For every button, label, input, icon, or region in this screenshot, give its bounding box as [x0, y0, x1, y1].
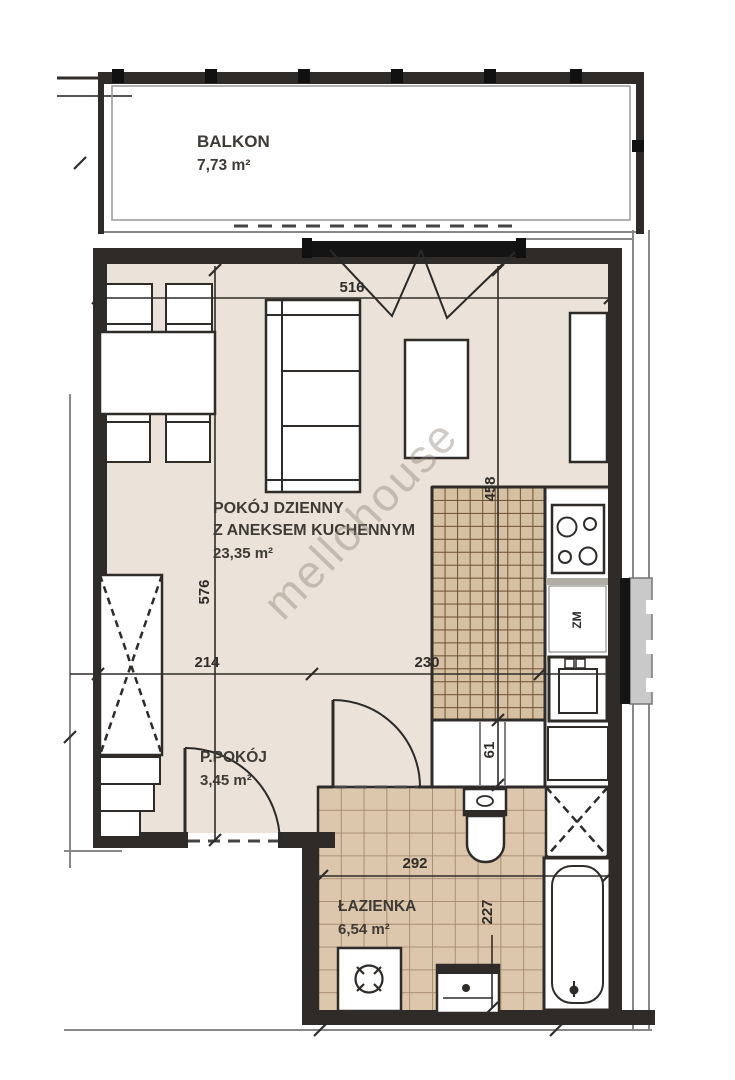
hallway-area: 3,45 m²	[200, 772, 252, 789]
dim-214: 214	[194, 654, 220, 671]
counter-cabinet	[548, 727, 608, 780]
dim-230: 230	[414, 654, 439, 671]
pillar-element	[620, 578, 654, 704]
dim-516: 516	[339, 279, 364, 296]
bathtub-icon	[544, 858, 610, 1010]
bathroom-label: ŁAZIENKA	[338, 898, 416, 915]
sofa	[266, 300, 360, 492]
living-room-area: 23,35 m²	[213, 545, 273, 562]
dim-576: 576	[196, 579, 213, 604]
hallway-label: P.POKÓJ	[200, 748, 267, 766]
balcony-label: BALKON	[197, 132, 270, 151]
shaft-x	[546, 787, 608, 857]
balcony: BALKON 7,73 m²	[98, 69, 644, 234]
dishwasher: ZM	[549, 586, 606, 652]
dim-227: 227	[479, 899, 496, 924]
dining-table	[100, 332, 215, 414]
dim-292: 292	[402, 855, 427, 872]
balcony-door-threshold	[306, 241, 520, 257]
living-room-label-line1: POKÓJ DZIENNY	[213, 498, 344, 517]
bathroom-area: 6,54 m²	[338, 921, 390, 938]
bathroom-sink-icon	[437, 965, 499, 1013]
dim-61: 61	[481, 742, 498, 759]
washing-machine-icon	[338, 948, 401, 1011]
balcony-area: 7,73 m²	[197, 157, 250, 174]
wardrobe	[570, 313, 607, 462]
dim-458: 458	[482, 476, 499, 501]
kitchen-tiles	[432, 487, 545, 720]
floor-plan: BALKON 7,73 m²	[0, 0, 735, 1080]
dishwasher-label: ZM	[570, 611, 584, 628]
floor-plan-svg: BALKON 7,73 m²	[0, 0, 735, 1080]
toilet-icon	[464, 789, 506, 862]
stove-icon	[552, 505, 604, 573]
kitchen-sink-icon	[549, 657, 607, 721]
tall-cabinet-x	[100, 575, 162, 755]
kitchen-appliances: ZM	[546, 505, 608, 780]
